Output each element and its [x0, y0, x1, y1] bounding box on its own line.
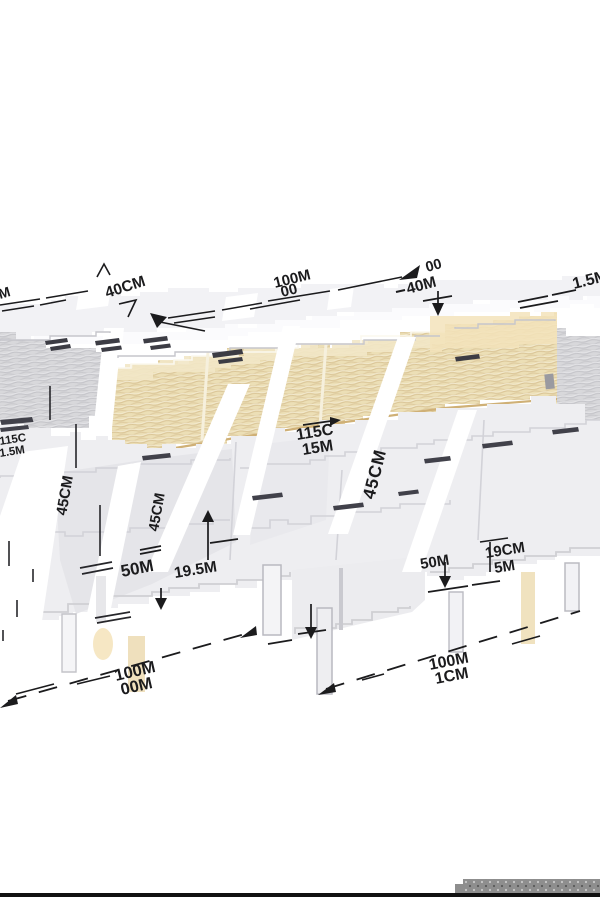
- svg-text:5M: 5M: [493, 557, 516, 577]
- svg-text:M: M: [0, 283, 12, 302]
- svg-text:00: 00: [424, 256, 444, 276]
